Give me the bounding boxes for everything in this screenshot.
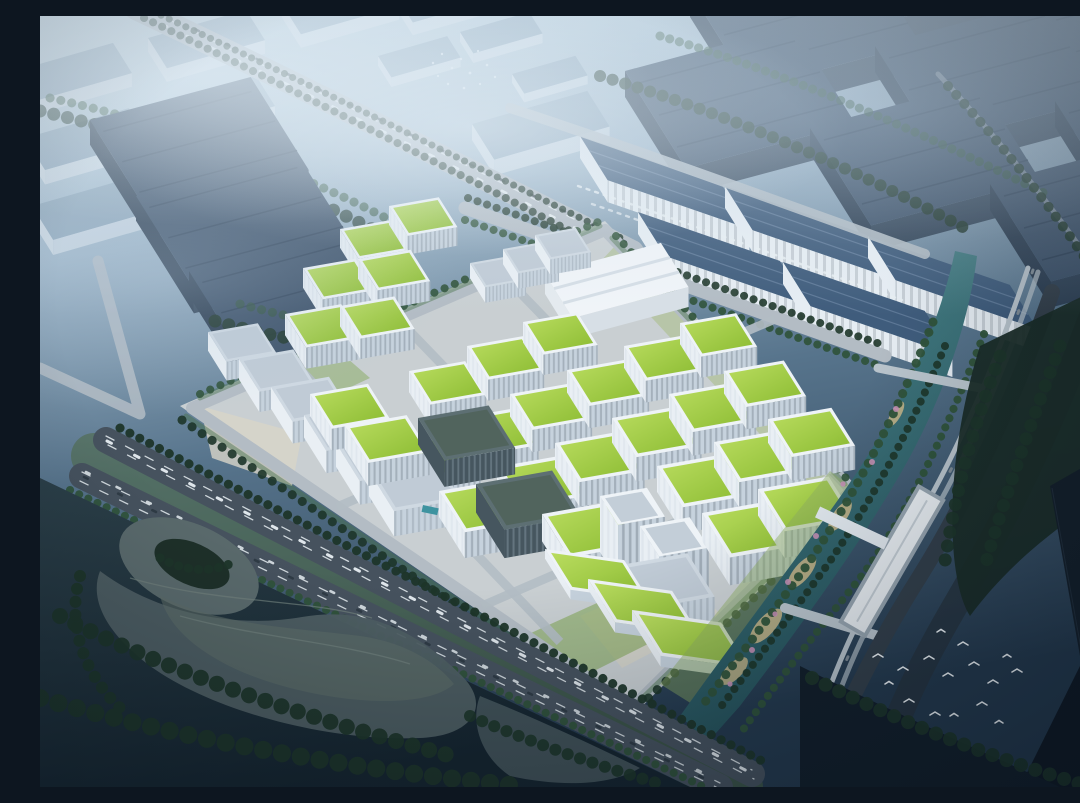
aerial-render-canvas bbox=[40, 16, 1080, 787]
aerial-render bbox=[40, 16, 1080, 787]
mist-overlay bbox=[40, 16, 1080, 787]
